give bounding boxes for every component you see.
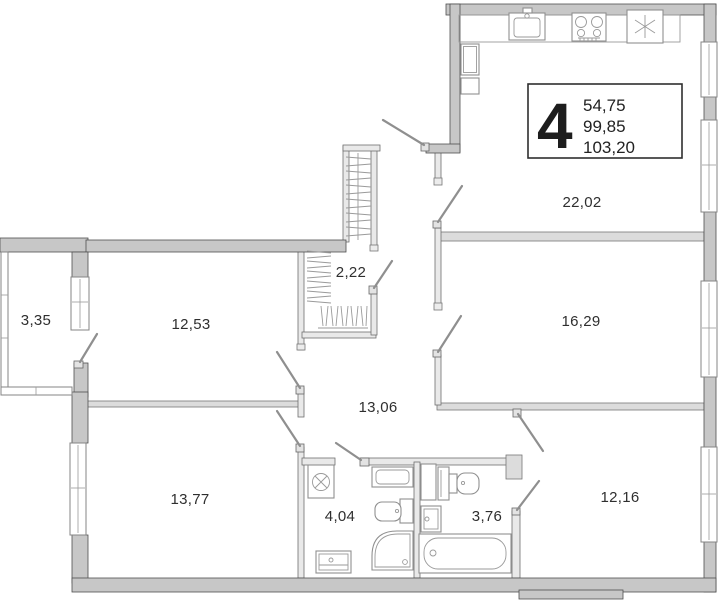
wall-left bbox=[72, 392, 88, 443]
bathroom-left-door bbox=[336, 443, 369, 466]
wall-cap bbox=[370, 245, 378, 251]
wall-balcony-pillar-1 bbox=[72, 252, 88, 277]
shelf-icon bbox=[372, 467, 413, 487]
wall-cap bbox=[434, 303, 442, 310]
wall-hall-east-1 bbox=[435, 228, 441, 304]
toilet-icon bbox=[375, 499, 413, 523]
door-swing bbox=[336, 443, 361, 460]
wall-pillar-corridor bbox=[506, 455, 522, 479]
entry-door bbox=[383, 120, 429, 151]
wardrobe-door bbox=[369, 261, 392, 294]
bathroom-right-door bbox=[512, 481, 539, 515]
washing-machine-icon bbox=[308, 465, 334, 498]
room-label-bedroom-bottom-right: 12,16 bbox=[600, 489, 639, 506]
door-swing bbox=[518, 414, 543, 451]
stove-icon bbox=[572, 13, 606, 41]
room-label-bathroom-left: 4,04 bbox=[325, 508, 355, 525]
window-balcony-glazing-left bbox=[1, 252, 8, 392]
floor-plan-drawing: 22,02 16,29 12,16 13,77 12,53 13,06 2,22… bbox=[0, 0, 723, 600]
wall-wardrobe-east bbox=[371, 289, 377, 335]
wall-wardrobe-bottom bbox=[302, 332, 376, 338]
wall-cap bbox=[297, 344, 305, 350]
shower-icon bbox=[372, 531, 413, 570]
wall-hall-west-3 bbox=[298, 447, 304, 578]
door-swing bbox=[374, 261, 392, 288]
room-label-wardrobe: 2,22 bbox=[336, 264, 366, 281]
sink-icon bbox=[421, 506, 441, 532]
door-swing bbox=[438, 186, 462, 222]
wall-left bbox=[72, 535, 88, 583]
kitchen-door bbox=[433, 186, 462, 228]
wall-right bbox=[704, 212, 716, 281]
fridge-snowflake-icon bbox=[627, 10, 663, 43]
room-label-room-left: 12,53 bbox=[171, 316, 210, 333]
wall-kitchen-west bbox=[450, 4, 460, 152]
area-value-2: 99,85 bbox=[583, 117, 626, 136]
wall-bedrooms-right bbox=[437, 403, 704, 410]
wall-closet-top bbox=[343, 145, 380, 151]
bathtub-icon bbox=[419, 534, 511, 573]
wall-entry bbox=[426, 144, 460, 153]
doors bbox=[74, 120, 543, 515]
wall-balcony-top bbox=[0, 238, 88, 252]
room-label-bathroom-right: 3,76 bbox=[472, 508, 502, 525]
wall-hall-east-2 bbox=[435, 355, 441, 405]
wall-cap bbox=[434, 178, 442, 185]
room-label-balcony: 3,35 bbox=[21, 312, 51, 329]
wall-entry-stub bbox=[435, 151, 441, 179]
window-balcony-glazing-bottom bbox=[1, 387, 72, 395]
wall-kitchen-bedroom bbox=[437, 232, 704, 241]
door-swing bbox=[277, 411, 300, 446]
door-hinge bbox=[74, 361, 83, 368]
wall-bottom-step bbox=[519, 590, 623, 599]
door-swing bbox=[383, 120, 424, 145]
wall-right bbox=[704, 4, 716, 42]
door-swing bbox=[517, 481, 539, 510]
room-label-bedroom-bottom-left: 13,77 bbox=[170, 491, 209, 508]
wall-closet-east bbox=[371, 146, 377, 250]
room-label-kitchen-living: 22,02 bbox=[562, 194, 601, 211]
info-box: 4 54,75 99,85 103,20 bbox=[528, 84, 682, 162]
door-swing bbox=[438, 316, 461, 352]
door-swing bbox=[277, 352, 300, 388]
wall-left-rooms bbox=[86, 401, 300, 407]
rooms-count: 4 bbox=[537, 90, 573, 162]
room-label-bedroom-right: 16,29 bbox=[561, 313, 600, 330]
bedroom-bottom-right-door bbox=[513, 409, 543, 451]
area-value-1: 54,75 bbox=[583, 96, 626, 115]
washbasin-icon bbox=[316, 551, 351, 573]
floor-plan: 22,02 16,29 12,16 13,77 12,53 13,06 2,22… bbox=[0, 0, 723, 600]
wall-bath-east bbox=[512, 511, 520, 578]
door-swing bbox=[80, 334, 97, 362]
kitchen-sink-icon bbox=[509, 8, 545, 40]
room-label-hallway: 13,06 bbox=[358, 399, 397, 416]
wall-bath-top-1 bbox=[302, 458, 335, 465]
bedroom-right-door bbox=[433, 316, 461, 357]
cabinet-icon bbox=[421, 464, 449, 500]
kitchen-area bbox=[459, 8, 680, 94]
area-value-3: 103,20 bbox=[583, 138, 635, 157]
toilet-icon bbox=[449, 473, 479, 494]
bathroom-left-fixtures bbox=[308, 465, 413, 573]
wall-top-left bbox=[86, 240, 346, 252]
kitchen-cabinets bbox=[461, 44, 479, 94]
wall-right bbox=[704, 377, 716, 447]
wall-right bbox=[704, 97, 716, 120]
room-left-door bbox=[277, 352, 304, 394]
